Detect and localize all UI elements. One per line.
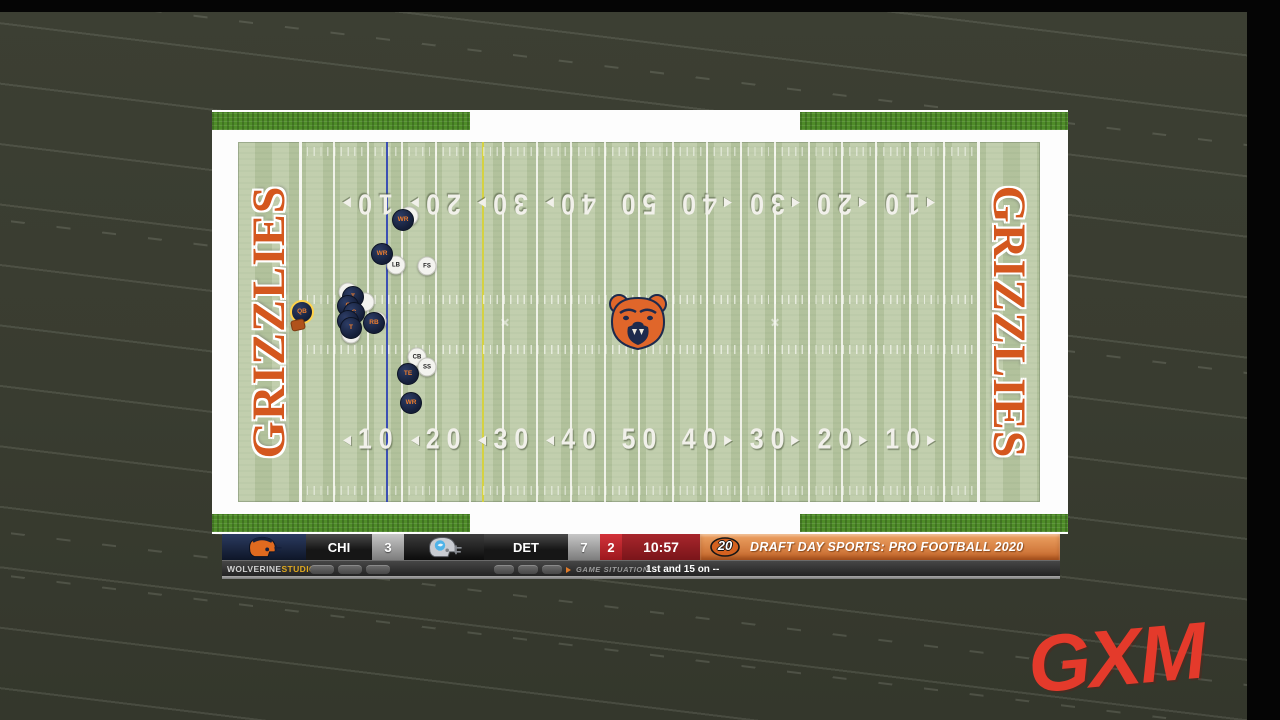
situation-arrow-icon (566, 567, 571, 573)
yard-number: 20 (817, 189, 867, 218)
status-button[interactable] (494, 565, 514, 574)
status-bar: WOLVERINESTUDIOS GAME SITUATION 1st and … (222, 560, 1060, 576)
yard-number: 10 (343, 189, 393, 218)
player-dot-wr: WR (371, 243, 393, 265)
field-x-mark (771, 318, 780, 327)
brand-wolverine: WOLVERINE (227, 564, 281, 574)
yard-number: 40 (682, 426, 732, 455)
yard-line (808, 142, 810, 502)
yard-number: 30 (750, 189, 800, 218)
wolverine-studios-brand: WOLVERINESTUDIOS (227, 564, 322, 574)
yard-number: 30 (478, 426, 528, 455)
player-dot-wr: WR (400, 392, 422, 414)
game-clock: 10:57 (622, 534, 700, 560)
yard-line (943, 142, 945, 502)
yard-line (401, 142, 403, 502)
quarter-indicator: 2 (600, 534, 622, 560)
playfield: 101020203030404050504040303020201010 GRI… (238, 142, 1040, 502)
game-situation-label: GAME SITUATION (576, 565, 649, 574)
player-dot-t: T (340, 317, 362, 339)
grass-border (212, 112, 470, 130)
yard-number: 10 (885, 426, 935, 455)
status-bar-shadow (222, 576, 1060, 579)
right-letterbox-bar (1247, 0, 1280, 720)
field-x-mark (501, 318, 510, 327)
yard-line (333, 142, 335, 502)
endzone-team-name: GRIZZLIES (242, 186, 296, 459)
player-dot-ss: SS (418, 358, 437, 377)
football-marker (290, 318, 306, 332)
home-helmet-box (404, 534, 484, 560)
bear-head-logo (606, 292, 670, 352)
endzone-team-name: GRIZZLIES (982, 186, 1036, 459)
status-button[interactable] (310, 565, 334, 574)
yard-line (875, 142, 877, 502)
home-helmet-icon (422, 535, 466, 559)
scoreboard: CHI 3 DET 7 2 10:57 20 DRAFT DAY SPORTS:… (222, 534, 1060, 560)
yard-number: 20 (817, 426, 867, 455)
away-team-abbr: CHI (306, 534, 372, 560)
yard-number: 10 (343, 426, 393, 455)
yard-line (469, 142, 471, 502)
status-button[interactable] (366, 565, 390, 574)
player-dot-fs: FS (418, 257, 437, 276)
player-dot-te: TE (397, 363, 419, 385)
status-button[interactable] (338, 565, 362, 574)
yard-number: 40 (546, 189, 596, 218)
yard-line (672, 142, 674, 502)
grass-border (212, 514, 470, 532)
home-score: 7 (568, 534, 600, 560)
home-team-abbr: DET (484, 534, 568, 560)
banner-title: DRAFT DAY SPORTS: PRO FOOTBALL 2020 (750, 540, 1024, 554)
yard-number: 20 (411, 426, 461, 455)
yard-number: 40 (682, 189, 732, 218)
player-dot-rb: RB (363, 312, 385, 334)
endzone-right: GRIZZLIES (978, 142, 1040, 502)
yard-line (536, 142, 538, 502)
yard-number: 10 (885, 189, 935, 218)
game-screen: 30 30 1010202030304040505040403030202010… (0, 0, 1280, 720)
away-score: 3 (372, 534, 404, 560)
player-dot-wr: WR (392, 209, 414, 231)
status-button[interactable] (542, 565, 562, 574)
away-helmet-icon (242, 535, 286, 559)
football-20-icon: 20 (710, 537, 740, 557)
yard-number: 40 (546, 426, 596, 455)
banner-logo-number: 20 (710, 538, 740, 553)
sideline-ticks (300, 486, 978, 495)
status-button[interactable] (518, 565, 538, 574)
down-and-distance: 1st and 15 on -- (646, 564, 719, 575)
top-letterbox-bar (0, 0, 1280, 12)
yard-number: 30 (750, 426, 800, 455)
grass-border (800, 514, 1068, 532)
yard-number: 50 (622, 189, 657, 218)
yard-number: 50 (622, 426, 657, 455)
game-banner: 20 DRAFT DAY SPORTS: PRO FOOTBALL 2020 (700, 534, 1060, 560)
field-panel: 101020203030404050504040303020201010 GRI… (212, 110, 1068, 534)
gxm-watermark: GXM (1024, 604, 1208, 711)
away-helmet-box (222, 534, 306, 560)
sideline-ticks (300, 147, 978, 156)
yard-line (740, 142, 742, 502)
grass-border (800, 112, 1068, 130)
yard-number: 30 (478, 189, 528, 218)
